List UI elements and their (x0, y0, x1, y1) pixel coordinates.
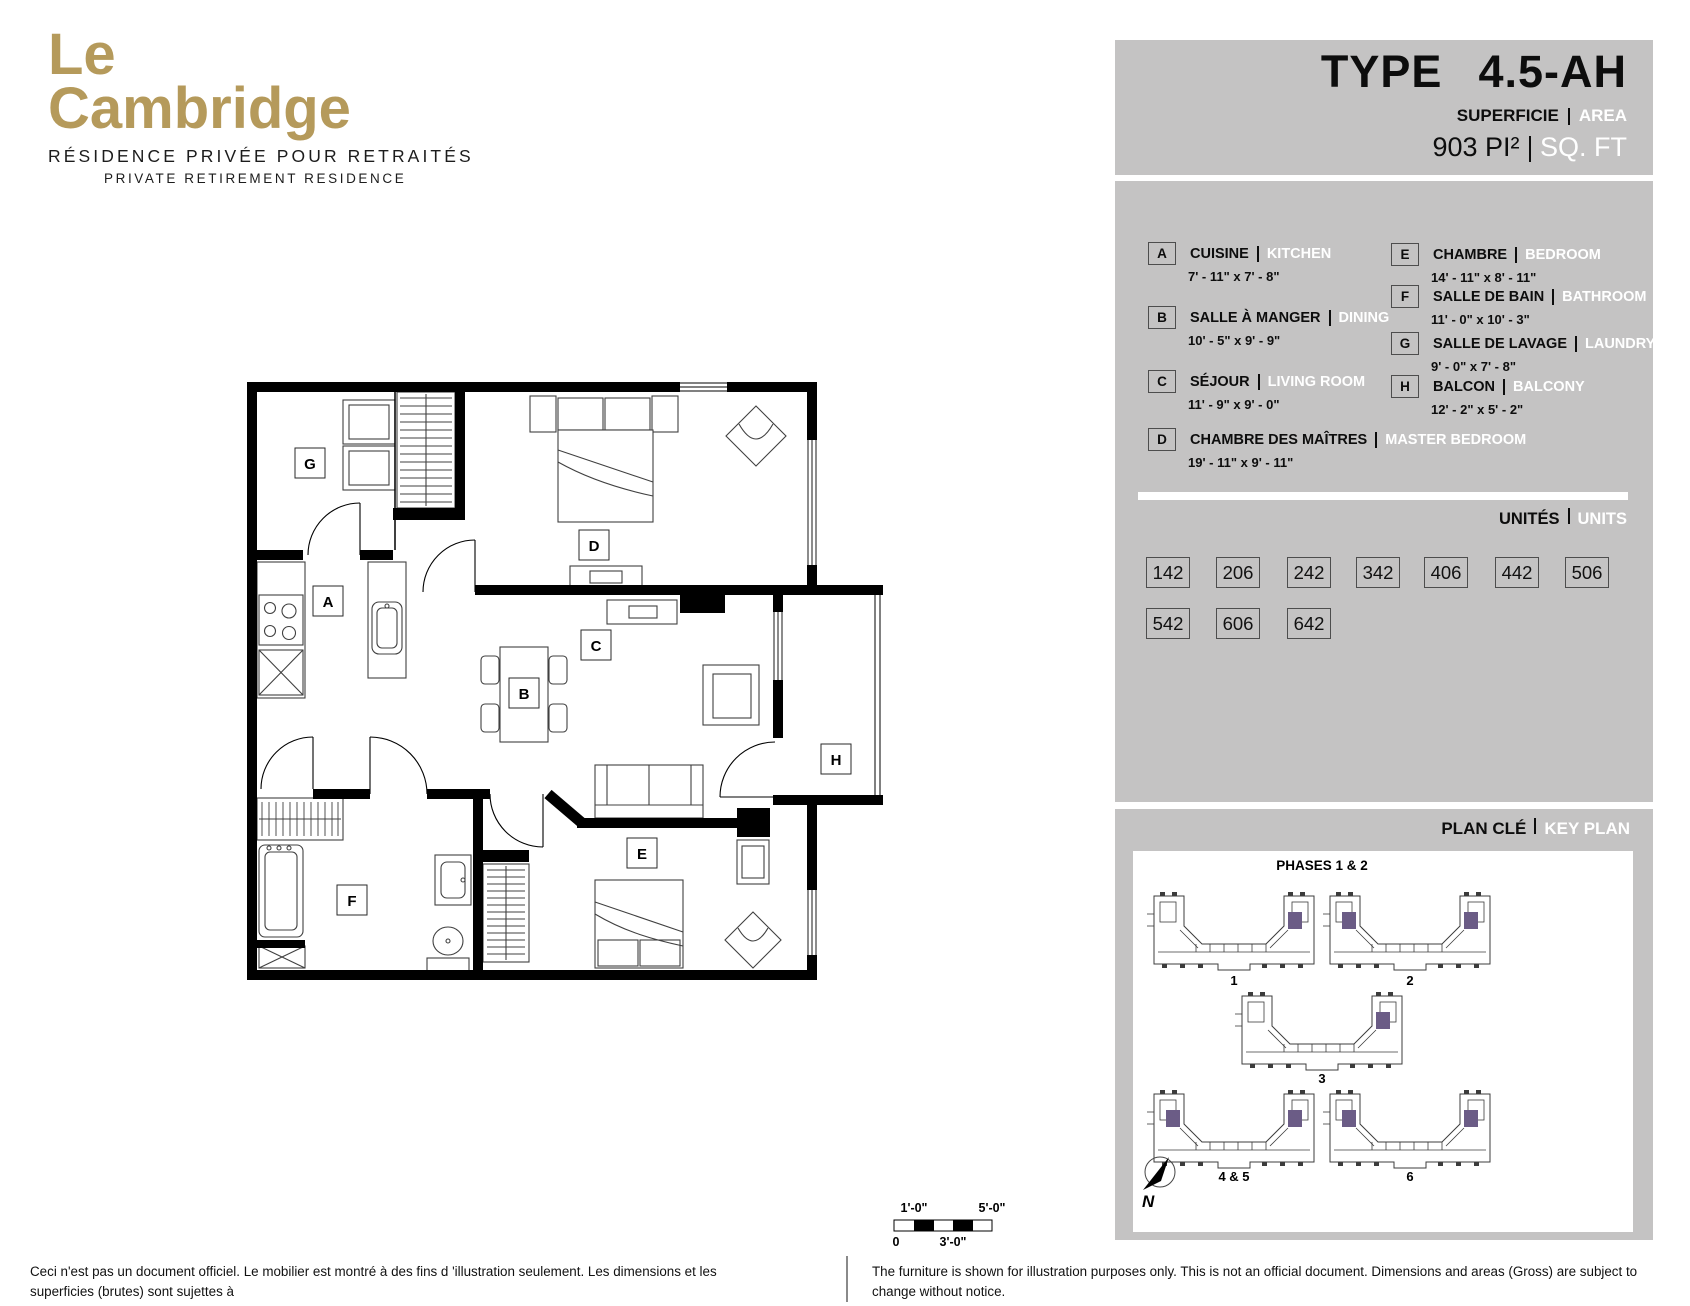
type-value: 4.5-AH (1478, 46, 1627, 97)
room-name-fr: SALLE DE BAIN (1433, 289, 1544, 305)
divider-bar-icon (1257, 246, 1259, 262)
disclaimer-divider (846, 1256, 848, 1302)
unit-number-206: 206 (1216, 557, 1260, 588)
key-plan-map: PHASES 1 & 2 1 2 3 4 (1133, 851, 1633, 1232)
room-letter-box: D (1148, 428, 1176, 451)
room-dimensions: 11' - 0" x 10' - 3" (1431, 312, 1646, 327)
key-plan-title-en: KEY PLAN (1544, 819, 1630, 838)
key-plan-building-6 (1323, 1090, 1490, 1168)
divider-bar-icon (1375, 432, 1377, 448)
balcony-door-opening (773, 738, 783, 795)
bathtub-icon (259, 845, 303, 937)
plan-label-F: F (337, 885, 367, 915)
header-panel: TYPE4.5-AH SUPERFICIEAREA 903 PI²SQ. FT (1115, 40, 1653, 175)
legend-room-living: CSÉJOURLIVING ROOM 11' - 9" x 9' - 0" (1148, 370, 1365, 412)
room-letter-box: C (1148, 370, 1176, 393)
room-dimensions: 9' - 0" x 7' - 8" (1431, 359, 1690, 374)
white-divider (1138, 492, 1628, 500)
disclaimer-en-line1: The furniture is shown for illustration … (872, 1262, 1662, 1302)
key-plan-title: PLAN CLÉKEY PLAN (1441, 818, 1630, 839)
plan-label-C: C (581, 630, 611, 660)
area-value-en: SQ. FT (1540, 132, 1627, 162)
unit-number-142: 142 (1146, 557, 1190, 588)
closet-hangers-icon (397, 392, 455, 508)
corner-chair-icon (725, 912, 781, 968)
unit-number-542: 542 (1146, 608, 1190, 639)
legend-room-balcony: HBALCONBALCONY 12' - 2" x 5' - 2" (1391, 375, 1585, 417)
bench-icon (737, 840, 769, 884)
door-icon (423, 540, 475, 592)
room-name-fr: CHAMBRE (1433, 247, 1507, 263)
unit-number-506: 506 (1565, 557, 1609, 588)
balcony-railing (875, 590, 880, 800)
shower-icon (259, 946, 305, 968)
closet-hangers-icon (257, 798, 343, 840)
brand-tagline-fr: RÉSIDENCE PRIVÉE POUR RETRAITÉS (48, 146, 474, 167)
vanity-sink-icon (435, 855, 471, 905)
disclaimer-fr-line1: Ceci n'est pas un document officiel. Le … (30, 1262, 770, 1302)
svg-text:A: A (323, 594, 334, 611)
brand-logo: Le Cambridge RÉSIDENCE PRIVÉE POUR RETRA… (48, 28, 474, 186)
floor-plan-sheet: Le Cambridge RÉSIDENCE PRIVÉE POUR RETRA… (0, 0, 1690, 1306)
window-icon (773, 612, 783, 680)
building-label-6: 6 (1406, 1169, 1413, 1184)
washer-dryer-icon (343, 400, 395, 490)
scale-label-0: 0 (893, 1235, 900, 1249)
door-icon (370, 737, 427, 794)
room-letter-box: H (1391, 375, 1419, 398)
room-letter-box: F (1391, 285, 1419, 308)
room-name-en: LAUNDRY ROOM (1585, 336, 1690, 352)
master-bed-icon (530, 396, 678, 522)
corner-chair-icon (726, 406, 786, 466)
toilet-icon (427, 927, 469, 972)
key-plan-svg: PHASES 1 & 2 1 2 3 4 (1133, 851, 1633, 1232)
unit-number-242: 242 (1287, 557, 1331, 588)
tv-stand-icon (607, 600, 677, 624)
plan-label-E: E (627, 838, 657, 868)
door-icon (261, 737, 313, 789)
divider-bar-icon (1258, 374, 1260, 390)
room-name-fr: CHAMBRE DES MAÎTRES (1190, 432, 1367, 448)
unit-number-406: 406 (1424, 557, 1468, 588)
units-heading: UNITÉSUNITS (1499, 508, 1627, 529)
window-icon (807, 890, 817, 955)
divider-bar-icon (1515, 247, 1517, 263)
divider-bar-icon (1534, 818, 1536, 834)
svg-text:F: F (347, 893, 356, 910)
room-letter-box: G (1391, 332, 1419, 355)
room-name-fr: SALLE DE LAVAGE (1433, 336, 1567, 352)
divider-bar-icon (1568, 508, 1570, 524)
key-plan-building-3 (1235, 992, 1402, 1070)
svg-text:G: G (304, 456, 316, 473)
area-label: AREA (1579, 106, 1627, 125)
room-letter-box: A (1148, 242, 1176, 265)
key-plan-title-fr: PLAN CLÉ (1441, 819, 1526, 838)
svg-text:D: D (589, 538, 600, 555)
building-label-2: 2 (1406, 973, 1413, 988)
brand-tagline-en: PRIVATE RETIREMENT RESIDENCE (104, 171, 474, 186)
fridge-icon (259, 650, 303, 695)
building-label-4-5: 4 & 5 (1218, 1169, 1249, 1184)
area-value-fr: 903 PI² (1432, 132, 1519, 162)
plan-label-B: B (509, 678, 539, 708)
room-dimensions: 7' - 11" x 7' - 8" (1188, 269, 1331, 284)
type-label: TYPE (1321, 46, 1443, 97)
window-icon (680, 382, 727, 392)
building-label-3: 3 (1318, 1071, 1325, 1086)
door-icon (308, 503, 360, 555)
divider-bar-icon (1503, 379, 1505, 395)
north-label: N (1142, 1192, 1155, 1211)
svg-text:C: C (591, 638, 602, 655)
key-plan-building-4-5 (1147, 1090, 1314, 1168)
room-name-fr: CUISINE (1190, 246, 1249, 262)
legend-room-master-bedroom: DCHAMBRE DES MAÎTRESMASTER BEDROOM 19' -… (1148, 428, 1526, 470)
unit-number-606: 606 (1216, 608, 1260, 639)
room-name-en: KITCHEN (1267, 246, 1331, 262)
room-name-fr: SALLE À MANGER (1190, 310, 1321, 326)
divider-bar-icon (1329, 310, 1331, 326)
scale-label-1ft: 1'-0" (901, 1201, 928, 1215)
divider-bar-icon (1529, 136, 1532, 162)
key-plan-building-2 (1323, 892, 1490, 970)
room-name-en: BALCONY (1513, 379, 1585, 395)
kitchen-sink-icon (372, 602, 402, 654)
key-plan-building-1 (1147, 892, 1314, 970)
unit-type-title: TYPE4.5-AH (1321, 46, 1627, 98)
legend-room-bathroom: FSALLE DE BAINBATHROOM 11' - 0" x 10' - … (1391, 285, 1646, 327)
superficie-label: SUPERFICIE (1457, 106, 1559, 125)
bed-icon (595, 880, 683, 968)
plan-label-D: D (579, 530, 609, 560)
units-title-fr: UNITÉS (1499, 510, 1560, 528)
unit-number-442: 442 (1495, 557, 1539, 588)
unit-number-342: 342 (1356, 557, 1400, 588)
phases-label: PHASES 1 & 2 (1276, 858, 1368, 873)
legend-room-dining: BSALLE À MANGERDINING 10' - 5" x 9' - 9" (1148, 306, 1389, 348)
room-dimensions: 14' - 11" x 8' - 11" (1431, 270, 1601, 285)
units-title-en: UNITS (1578, 510, 1628, 528)
north-arrow-icon: N (1142, 1157, 1175, 1211)
room-dimensions: 10' - 5" x 9' - 9" (1188, 333, 1389, 348)
scale-bar: 1'-0" 5'-0" 0 3'-0" (880, 1196, 1010, 1254)
brand-name-line1: Le (48, 28, 474, 82)
svg-text:E: E (637, 846, 647, 863)
unit-number-642: 642 (1287, 608, 1331, 639)
scale-label-3ft: 3'-0" (940, 1235, 967, 1249)
scale-label-5ft: 5'-0" (979, 1201, 1006, 1215)
room-letter-box: E (1391, 243, 1419, 266)
divider-bar-icon (1568, 108, 1570, 125)
room-name-en: MASTER BEDROOM (1385, 432, 1526, 448)
door-icon (720, 742, 775, 797)
room-name-en: LIVING ROOM (1268, 374, 1365, 390)
sofa-icon (595, 765, 703, 818)
room-name-fr: SÉJOUR (1190, 374, 1250, 390)
disclaimer-fr: Ceci n'est pas un document officiel. Le … (30, 1262, 770, 1306)
room-dimensions: 11' - 9" x 9' - 0" (1188, 397, 1365, 412)
divider-bar-icon (1552, 289, 1554, 305)
room-dimensions: 19' - 11" x 9' - 11" (1188, 455, 1526, 470)
dresser-icon (570, 566, 642, 588)
stove-icon (259, 595, 303, 645)
brand-name-line2: Cambridge (48, 82, 474, 136)
room-letter-box: B (1148, 306, 1176, 329)
door-icon (490, 794, 543, 847)
closet-hangers-icon (483, 864, 529, 962)
disclaimer-fr-line2: changement sans préavis. La superficie e… (30, 1302, 770, 1306)
divider-bar-icon (1575, 336, 1577, 352)
key-plan-panel: PLAN CLÉKEY PLAN (1115, 809, 1653, 1240)
room-name-fr: BALCON (1433, 379, 1495, 395)
window-icon (807, 440, 817, 565)
armchair-icon (703, 665, 759, 725)
floor-plan-drawing: G D A B C H E (225, 340, 885, 985)
svg-text:B: B (519, 686, 530, 703)
plan-label-H: H (821, 744, 851, 774)
legend-room-bedroom: ECHAMBREBEDROOM 14' - 11" x 8' - 11" (1391, 243, 1601, 285)
room-name-en: BEDROOM (1525, 247, 1601, 263)
plan-label-G: G (295, 448, 325, 478)
plan-label-A: A (313, 586, 343, 616)
legend-room-kitchen: ACUISINEKITCHEN 7' - 11" x 7' - 8" (1148, 242, 1331, 284)
disclaimer-en-line2: Area and position of structural elements… (872, 1302, 1662, 1306)
room-name-en: DINING (1339, 310, 1390, 326)
building-label-1: 1 (1230, 973, 1237, 988)
laundry-door-opening (303, 550, 360, 560)
room-name-en: BATHROOM (1562, 289, 1646, 305)
svg-text:H: H (831, 752, 842, 769)
area-value-line: 903 PI²SQ. FT (1432, 132, 1627, 163)
superficie-line: SUPERFICIEAREA (1457, 106, 1627, 126)
legend-room-laundry: GSALLE DE LAVAGELAUNDRY ROOM 9' - 0" x 7… (1391, 332, 1690, 374)
disclaimer-en: The furniture is shown for illustration … (872, 1262, 1662, 1306)
legend-panel: ACUISINEKITCHEN 7' - 11" x 7' - 8" BSALL… (1115, 181, 1653, 802)
room-dimensions: 12' - 2" x 5' - 2" (1431, 402, 1585, 417)
